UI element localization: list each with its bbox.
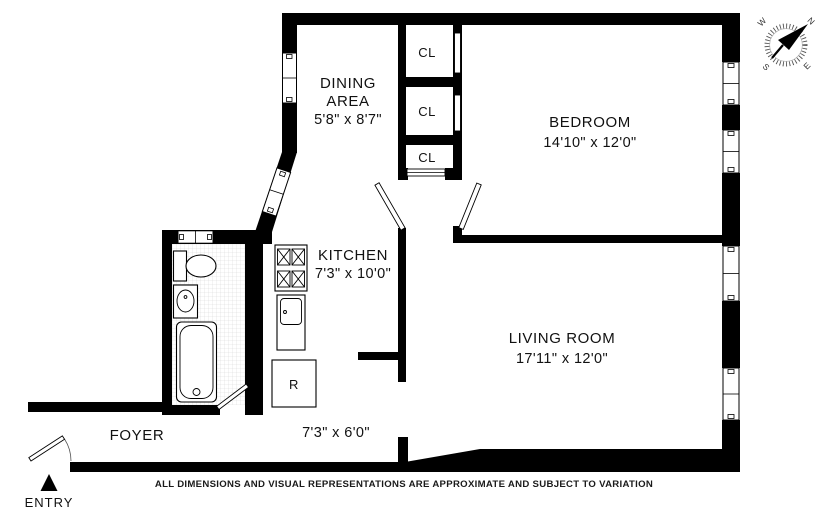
walls-layer [28, 13, 740, 472]
window [723, 246, 739, 301]
floor-plan-drawing: N W S E ENTRY DINING AREA 5'8" x 8'7" BE… [0, 0, 828, 520]
hall-dims: 7'3" x 6'0" [302, 425, 370, 441]
bathroom [172, 244, 249, 410]
disclaimer-text: ALL DIMENSIONS AND VISUAL REPRESENTATION… [155, 479, 653, 490]
window [723, 62, 739, 105]
compass-letter-s: S [761, 61, 772, 72]
living-room-label: LIVING ROOM [509, 330, 616, 347]
closet-bifold-door [407, 169, 445, 176]
right-wall-segment [722, 301, 740, 368]
floor-plan-canvas: N W S E ENTRY DINING AREA 5'8" x 8'7" BE… [0, 0, 828, 520]
entry-arrow [41, 474, 58, 491]
bedroom-label: BEDROOM [549, 114, 631, 131]
entry-label: ENTRY [25, 495, 74, 510]
dining-area-label-line2: AREA [326, 93, 369, 110]
window [262, 168, 290, 216]
closet-label-3: CL [418, 150, 436, 165]
compass-rose: N W S E [756, 15, 817, 72]
entry-marker: ENTRY [25, 474, 74, 510]
foyer-label: FOYER [110, 427, 165, 444]
closet-divider-wall [398, 135, 462, 145]
top-wall [282, 13, 740, 25]
window [723, 368, 739, 420]
right-wall-segment [722, 105, 740, 130]
compass-letter-e: E [801, 60, 812, 71]
window [283, 53, 297, 103]
bathtub [177, 322, 217, 402]
stove [275, 245, 307, 291]
closet-west-wall [398, 25, 406, 180]
closet-label-2: CL [418, 104, 436, 119]
bathroom-west-wall [162, 230, 172, 415]
right-wall-segment [722, 13, 740, 62]
kitchen-dims: 7'3" x 10'0" [315, 266, 391, 282]
bedroom-living-divider-wall [453, 235, 738, 243]
living-room-dims: 17'11" x 12'0" [516, 351, 608, 367]
closet-label-1: CL [418, 45, 436, 60]
hall-south-stub-wall [398, 437, 408, 463]
entry-door [29, 436, 71, 461]
bathroom-sink [174, 285, 198, 318]
kitchen-sink [277, 295, 305, 350]
window [723, 130, 739, 173]
foyer-north-wall [28, 402, 172, 412]
kitchen-south-stub-wall [358, 352, 398, 360]
closet-divider-wall [398, 77, 462, 87]
dining-west-wall [282, 13, 297, 53]
bedroom-french-doors [375, 183, 481, 230]
dining-area-dims: 5'8" x 8'7" [314, 112, 382, 128]
dining-west-wall [282, 103, 297, 153]
bathroom-east-wall [245, 244, 263, 415]
refrigerator-label: R [289, 377, 299, 392]
kitchen-east-wall [398, 228, 406, 382]
dining-area-label-line1: DINING [320, 75, 376, 92]
bedroom-dims: 14'10" x 12'0" [543, 135, 636, 151]
window [178, 231, 213, 243]
kitchen-label: KITCHEN [318, 247, 388, 264]
compass-letter-w: W [756, 16, 769, 29]
closet-door-stub [398, 168, 408, 180]
closet-door-stub [445, 168, 462, 180]
